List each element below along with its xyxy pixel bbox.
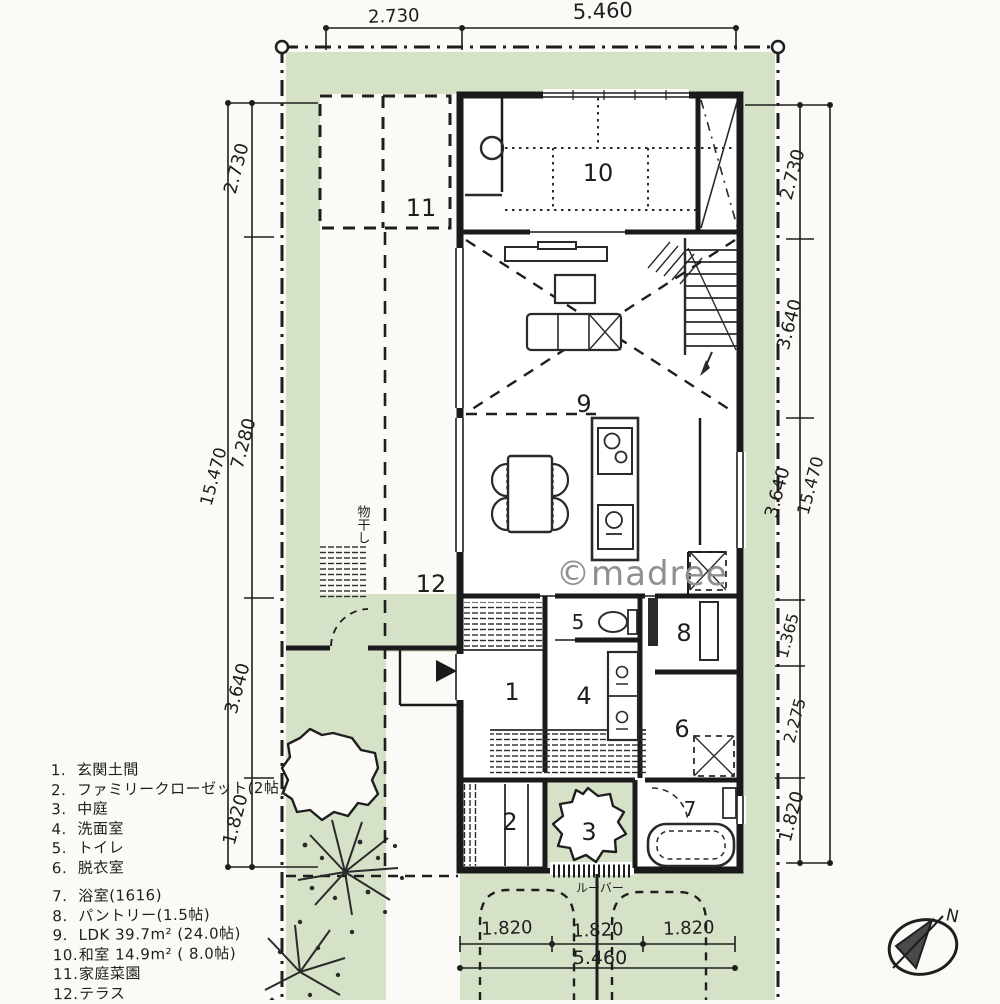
- legend-item: 4.洗面室: [51, 817, 286, 839]
- room-label-5: 5: [572, 610, 585, 634]
- legend-item: 9.LDK 39.7m² (24.0帖): [52, 924, 287, 946]
- room-label-4: 4: [576, 682, 591, 710]
- dim-bottom-3: 1.820: [663, 917, 715, 940]
- legend-label: 和室 14.9m² ( 8.0帖): [79, 944, 237, 964]
- dim-bottom-2: 1.820: [572, 919, 624, 942]
- low-table: [555, 275, 595, 303]
- room-label-1: 1: [504, 678, 519, 706]
- dim-right-6: 1.820: [775, 789, 809, 844]
- kitchen-island: [592, 418, 638, 560]
- legend-label: 中庭: [77, 800, 108, 818]
- legend-num: 5.: [52, 839, 78, 859]
- legend-label: 洗面室: [77, 819, 124, 837]
- room-label-2: 2: [502, 808, 517, 836]
- shower-panel: [723, 788, 736, 818]
- legend-label: トイレ: [78, 838, 125, 856]
- legend-label: ファミリークローゼット(2帖): [77, 778, 286, 798]
- dim-bottom-total: 5.460: [573, 947, 627, 969]
- legend-num: 10.: [53, 945, 79, 965]
- dining-table: [508, 456, 552, 532]
- dim-right-2: 3.640: [773, 297, 807, 352]
- room-label-12: 12: [416, 570, 447, 598]
- north-compass: N: [884, 905, 962, 980]
- legend-num: 1.: [51, 761, 77, 781]
- dim-top-1: 2.730: [368, 5, 420, 28]
- legend-label: 玄関土間: [77, 760, 139, 779]
- dim-left-1: 2.730: [220, 141, 254, 196]
- legend-num: 9.: [52, 926, 78, 946]
- dim-bottom-1: 1.820: [481, 917, 533, 940]
- legend-num: 11.: [53, 965, 79, 985]
- legend-num: 12.: [53, 984, 79, 1004]
- dim-right-1: 2.730: [776, 147, 810, 202]
- legend-num: 2.: [51, 780, 77, 800]
- dim-left-total: 15.470: [197, 445, 232, 508]
- room-label-8: 8: [676, 619, 691, 647]
- room-label-3: 3: [581, 818, 596, 846]
- legend-num: 8.: [52, 906, 78, 926]
- room-label-7: 7: [684, 797, 697, 821]
- legend-item: 3.中庭: [51, 798, 286, 820]
- legend-num: 6.: [52, 858, 78, 878]
- toilet: [599, 610, 637, 634]
- dim-left-2: 7.280: [227, 416, 261, 471]
- legend-item: 10.和室 14.9m² ( 8.0帖): [53, 943, 288, 965]
- dim-left-3: 3.640: [221, 661, 255, 716]
- legend-label: パントリー(1.5帖): [78, 905, 210, 924]
- legend-item: 7.浴室(1616): [52, 885, 287, 907]
- legend-item: 2.ファミリークローゼット(2帖): [51, 778, 286, 800]
- room-label-11: 11: [406, 194, 437, 222]
- laundry-label: 物干し: [355, 505, 371, 544]
- legend-item: 12.テラス: [53, 982, 288, 1004]
- room-label-6: 6: [674, 715, 689, 743]
- legend: 1.玄関土間 2.ファミリークローゼット(2帖) 3.中庭 4.洗面室 5.トイ…: [51, 759, 288, 1004]
- room-label-10: 10: [583, 159, 614, 187]
- legend-label: 浴室(1616): [78, 886, 162, 905]
- dim-right-5: 2.275: [780, 696, 810, 745]
- legend-num: 7.: [52, 887, 78, 907]
- legend-label: 脱衣室: [78, 858, 125, 876]
- sofa: [527, 314, 621, 350]
- watermark: ©madree: [556, 554, 728, 594]
- legend-num: 4.: [51, 819, 77, 839]
- north-letter: N: [944, 905, 961, 927]
- dim-right-total: 15.470: [794, 454, 829, 517]
- legend-num: 3.: [51, 800, 77, 820]
- room-label-9: 9: [576, 390, 591, 418]
- floor-plan-sketch: 2.730 5.460 2.730 7.280 3.640 1.820 15.4…: [0, 0, 1000, 1000]
- legend-item: 5.トイレ: [52, 837, 287, 859]
- dim-top-2: 5.460: [572, 0, 633, 24]
- legend-item: 1.玄関土間: [51, 759, 286, 781]
- legend-item: 11.家庭菜園: [53, 963, 288, 985]
- legend-label: LDK 39.7m² (24.0帖): [78, 924, 241, 944]
- vanity-units: [608, 652, 638, 740]
- legend-label: 家庭菜園: [79, 964, 141, 983]
- legend-item: 8.パントリー(1.5帖): [52, 904, 287, 926]
- terrace-shading: [320, 543, 368, 601]
- louver-label: ルーバー: [576, 881, 624, 895]
- legend-item: 6.脱衣室: [52, 856, 287, 878]
